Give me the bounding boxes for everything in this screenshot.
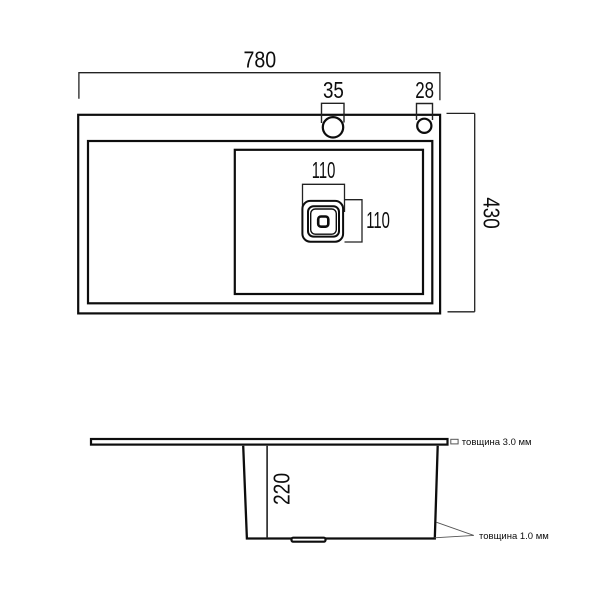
svg-text:товщина 3.0 мм: товщина 3.0 мм (462, 437, 532, 448)
svg-text:220: 220 (269, 473, 295, 505)
svg-text:110: 110 (366, 208, 390, 234)
svg-text:780: 780 (243, 46, 276, 73)
svg-text:товщина 1.0 мм: товщина 1.0 мм (479, 531, 549, 542)
svg-text:28: 28 (415, 77, 434, 103)
svg-text:110: 110 (312, 158, 336, 184)
svg-text:35: 35 (323, 77, 344, 104)
svg-text:430: 430 (478, 197, 505, 228)
